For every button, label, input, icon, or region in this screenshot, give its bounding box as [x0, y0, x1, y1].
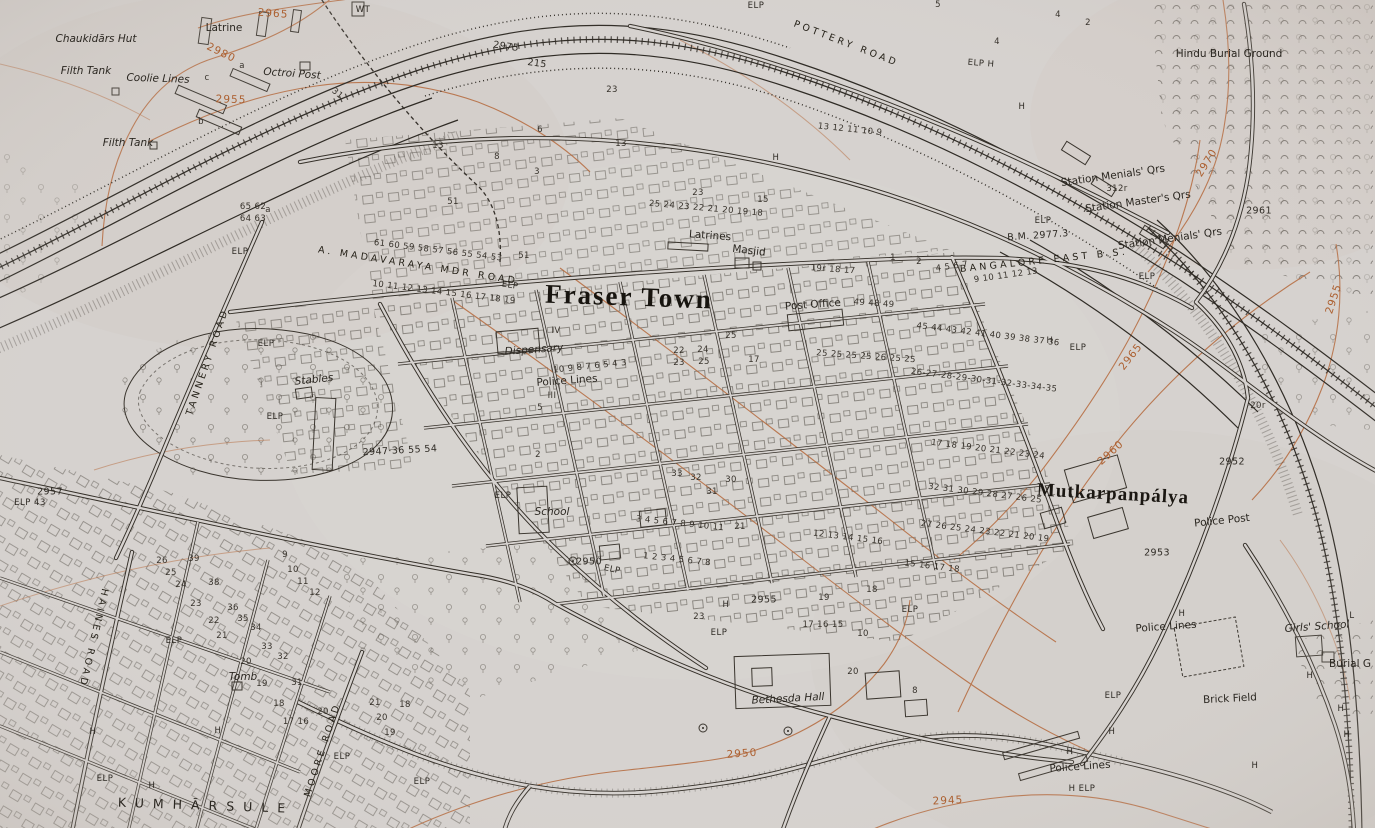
map-label: 2953: [1144, 548, 1170, 558]
map-label: 12: [309, 589, 321, 598]
map-label: ELP: [748, 2, 765, 11]
map-label: b: [198, 118, 204, 127]
map-label: L: [1349, 612, 1354, 621]
map-label: 17 16: [283, 718, 309, 727]
map-label: 8: [494, 153, 500, 162]
map-label: Filth Tank: [61, 66, 111, 77]
map-label: 10: [857, 630, 869, 639]
map-label: 64 63: [240, 215, 266, 224]
map-label: 32: [277, 653, 289, 662]
map-label: 18: [866, 586, 878, 595]
map-label: H: [1179, 610, 1186, 619]
map-label: 33: [261, 643, 273, 652]
map-label: 18: [273, 700, 285, 709]
map-label: 23: [190, 600, 202, 609]
map-label: BANGALORE EAST B.S.: [960, 247, 1129, 274]
map-label: 2955: [1324, 283, 1343, 315]
map-label: 26-27-28-29-30-31-32-33-34-35: [910, 368, 1057, 394]
map-label: H: [1338, 705, 1345, 714]
map-label: 2: [535, 451, 541, 460]
map-label: 20: [317, 708, 329, 717]
map-label: H: [1067, 748, 1074, 757]
map-label: Filth Tank: [103, 138, 153, 149]
map-label: H: [1307, 672, 1314, 681]
map-label: ELP H: [967, 59, 994, 69]
map-label: 13 12 11 10 9: [817, 122, 882, 137]
map-label: 12 13 14 15 16: [812, 529, 883, 546]
map-label: ELP: [414, 778, 431, 787]
map-label: 2945: [932, 795, 963, 807]
map-label: a: [265, 206, 271, 215]
map-label: 13: [615, 140, 627, 149]
map-label: Latrine: [206, 23, 243, 34]
map-label: 51: [447, 198, 459, 207]
map-label: 21: [734, 523, 746, 532]
map-label: ELP: [1139, 273, 1156, 282]
map-label: School: [535, 507, 570, 518]
map-label: Police Lines: [1135, 620, 1197, 635]
map-label: ELP: [1105, 692, 1122, 701]
map-label: 17 18 19 20 21 22 23 24: [931, 439, 1046, 461]
map-label: 2965: [1117, 342, 1144, 373]
map-label: Police Lines: [536, 374, 598, 389]
map-label: H: [1019, 103, 1026, 112]
map-label: 32: [690, 474, 702, 483]
map-label: 4: [994, 38, 1000, 47]
map-label: 31: [291, 679, 303, 688]
map-label: ELP: [267, 413, 284, 422]
map-label: 23: [692, 189, 704, 198]
map-label: 21: [369, 699, 381, 708]
map-label: 21: [216, 632, 228, 641]
map-label: 2955: [215, 94, 246, 106]
map-label: Post Office: [785, 298, 842, 312]
map-label: 2965: [257, 8, 288, 21]
map-label: 215: [527, 58, 547, 70]
map-label: Police Lines: [1049, 760, 1111, 775]
map-label: 33: [671, 470, 683, 479]
map-label: ELP: [232, 248, 249, 257]
map-label: KUMHĀRSULE: [118, 797, 295, 816]
map-label: 1: [890, 254, 896, 263]
map-label: H: [723, 601, 730, 610]
map-label: 2: [1085, 19, 1091, 28]
map-label: ELP: [902, 606, 919, 615]
map-label: Coolie Lines: [126, 73, 189, 86]
map-label: 2961: [1246, 206, 1272, 216]
map-label: Tomb: [229, 672, 257, 683]
map-label: ELP: [495, 492, 512, 501]
map-label: 45 44 43 42 41 40 39 38 37 36: [916, 322, 1060, 348]
map-label: 35: [237, 615, 249, 624]
map-label: Girls' School: [1284, 620, 1349, 635]
map-label: 3 4 5 6 7 8 9 10 11: [635, 515, 724, 533]
map-label: 2960: [1096, 439, 1126, 467]
map-label: 2950: [726, 748, 757, 761]
map-label: ELP: [711, 629, 728, 638]
map-label: ELP: [258, 340, 275, 349]
map-label: ELP 43: [14, 499, 46, 508]
map-label: Dispensary: [504, 343, 563, 358]
map-label: 15 16 17 18: [904, 559, 960, 574]
map-label: ELP: [603, 564, 621, 576]
map-label-layer: Chaukidārs HutFilth TankCoolie LinesFilt…: [0, 0, 1375, 828]
map-label: 17 16 15: [802, 621, 843, 630]
map-label: IV: [551, 327, 560, 336]
map-label: H: [773, 154, 780, 163]
map-label: 1 2 3 4 5 6 7 8: [643, 552, 712, 568]
map-label: 3: [534, 168, 540, 177]
map-label: 19: [256, 680, 268, 689]
map-label: 23: [693, 613, 705, 622]
map-label: 2970: [1194, 147, 1219, 179]
map-label: 32 31 30 29 28 27 26 25: [928, 483, 1043, 505]
map-label: ELP: [166, 637, 183, 646]
map-label: H: [149, 782, 156, 791]
map-label: Bethesda Hall: [751, 692, 824, 706]
map-label: 2957: [37, 487, 63, 497]
map-label: 2950: [576, 557, 602, 567]
map-label: H: [1252, 762, 1259, 771]
map-label: 4: [1055, 11, 1061, 20]
map-label: 23: [606, 86, 618, 95]
map-label: ELP: [501, 280, 519, 291]
map-label: 39: [188, 555, 200, 564]
map-label: 24: [697, 346, 709, 355]
map-label: 20r: [1250, 402, 1266, 411]
map-label: 31: [330, 87, 344, 101]
map-label: 19r 18 17: [810, 264, 855, 276]
map-label: Burial G: [1329, 659, 1371, 670]
map-label: Brick Field: [1203, 692, 1257, 705]
scanned-survey-map: Chaukidārs HutFilth TankCoolie LinesFilt…: [0, 0, 1375, 828]
map-label: Hindu Burial Ground: [1176, 49, 1283, 60]
map-label: Stables: [294, 373, 334, 387]
map-label: Police Post: [1194, 513, 1251, 529]
map-label: 5: [935, 1, 941, 10]
map-label: POTTERY ROAD: [792, 20, 900, 69]
map-label: 11: [297, 578, 309, 587]
map-label: Fraser Town: [545, 281, 714, 314]
map-label: c: [204, 74, 209, 83]
map-label: H: [1047, 337, 1054, 346]
map-label: 8: [912, 687, 918, 696]
map-label: Station Menials' Qrs: [1117, 227, 1222, 252]
map-label: 2952: [1219, 457, 1245, 467]
map-label: 36: [227, 604, 239, 613]
map-label: 19: [384, 729, 396, 738]
map-label: 20: [376, 714, 388, 723]
map-label: H ELP: [1069, 785, 1096, 794]
map-label: 49 48 49: [853, 298, 895, 309]
map-label: 10 11 12 13 14 15 16 17 18 19: [372, 280, 516, 306]
map-label: 27 26 25 24 23 22 21 20 19: [920, 520, 1049, 544]
map-label: WT: [356, 6, 371, 15]
map-label: 15: [757, 196, 769, 205]
map-label: 2947·36 55 54: [362, 444, 437, 457]
map-label: ELP: [1035, 217, 1052, 226]
map-label: 13: [432, 142, 444, 151]
map-label: Station Master's Qrs: [1085, 189, 1192, 214]
map-label: 25 25 25 25 26 25 25: [816, 349, 916, 364]
map-label: 312r: [1106, 185, 1127, 194]
map-label: 2: [916, 258, 922, 267]
map-label: 25: [698, 358, 710, 367]
map-label: 6: [537, 126, 543, 135]
map-label: HAINES ROAD: [77, 587, 109, 688]
map-label: 2980: [205, 42, 237, 65]
map-label: Masjid: [732, 244, 766, 259]
map-label: III: [548, 392, 557, 401]
map-label: 31: [706, 488, 718, 497]
map-label: ELP: [1070, 344, 1087, 353]
map-label: 51: [518, 252, 530, 261]
map-label: 20: [240, 658, 252, 667]
map-label: 25: [165, 569, 177, 578]
map-label: 25: [725, 332, 737, 341]
map-label: a: [239, 62, 245, 71]
map-label: 22: [208, 617, 220, 626]
map-label: 10: [287, 566, 299, 575]
map-label: 18: [399, 701, 411, 710]
map-label: B.M. 2977.3: [1007, 229, 1069, 243]
map-label: ELP: [334, 753, 351, 762]
map-label: 19: [818, 594, 830, 603]
map-label: H: [215, 727, 222, 736]
map-label: 5: [537, 404, 543, 413]
map-label: 26: [156, 557, 168, 566]
map-label: 2955: [751, 595, 777, 605]
map-label: 34: [250, 624, 262, 633]
map-label: 24: [175, 581, 187, 590]
map-label: ELP: [97, 775, 114, 784]
map-label: 65 62: [240, 203, 266, 212]
map-label: 23: [673, 359, 685, 368]
map-label: 30: [725, 476, 737, 485]
map-label: H: [90, 728, 97, 737]
map-label: Mutkarpanpálya: [1036, 481, 1189, 508]
map-label: 20: [847, 668, 859, 677]
map-label: TANNERY ROAD: [185, 307, 231, 417]
map-label: 9: [282, 551, 288, 560]
map-label: Octroi Post: [263, 67, 321, 81]
map-label: 25 24 23 22 21 20 19 18: [649, 200, 764, 218]
map-label: H: [1344, 731, 1351, 740]
map-label: H: [1109, 728, 1116, 737]
map-label: Latrines: [689, 229, 732, 242]
map-label: 2975: [493, 41, 520, 54]
map-label: 17: [748, 356, 760, 365]
map-label: Chaukidārs Hut: [56, 34, 137, 45]
map-label: 38: [208, 579, 220, 588]
map-label: 22: [673, 347, 685, 356]
